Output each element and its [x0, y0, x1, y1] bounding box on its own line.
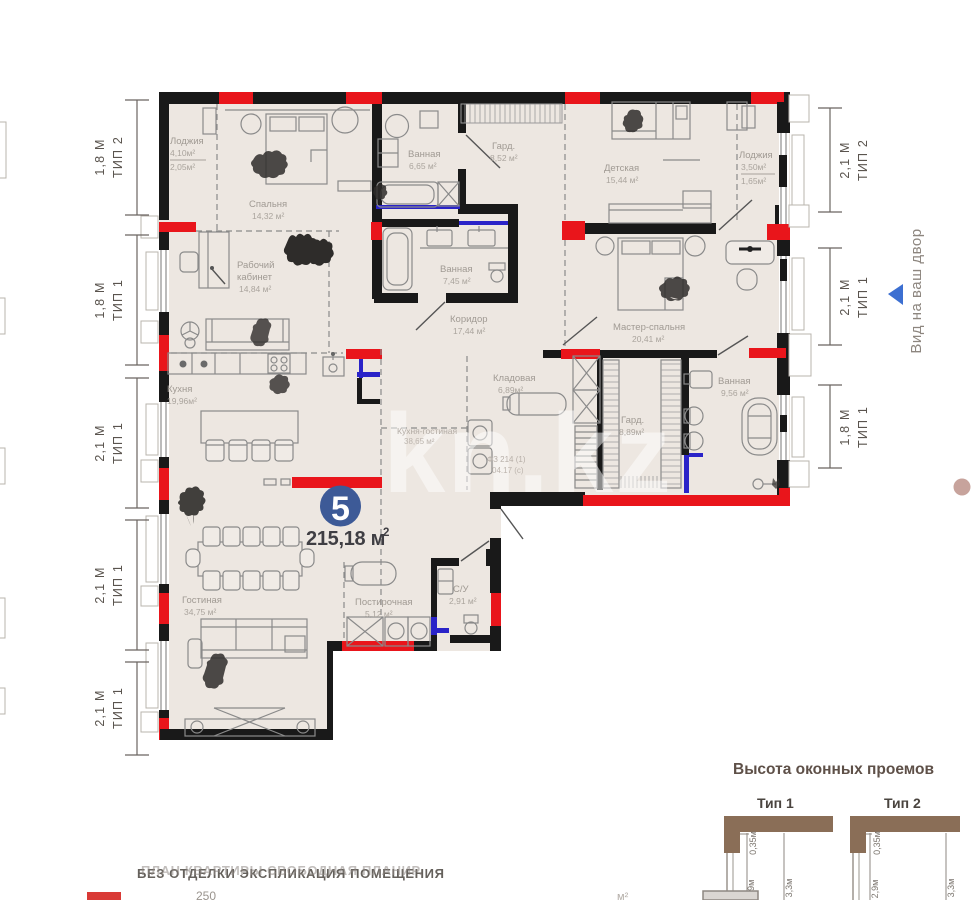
- svg-text:2,1 М: 2,1 М: [93, 566, 107, 603]
- svg-text:2,1 М: 2,1 М: [93, 424, 107, 461]
- svg-text:2: 2: [383, 527, 389, 539]
- svg-text:ТИП 1: ТИП 1: [856, 276, 870, 318]
- svg-text:Высота оконных проемов: Высота оконных проемов: [733, 761, 934, 778]
- svg-text:7,45 м²: 7,45 м²: [443, 276, 471, 286]
- svg-text:Вид на ваш двор: Вид на ваш двор: [908, 228, 925, 353]
- svg-text:Кладовая: Кладовая: [493, 373, 536, 384]
- svg-text:1,65м²: 1,65м²: [741, 176, 766, 186]
- svg-text:Детская: Детская: [604, 163, 639, 174]
- svg-text:Мастер-спальня: Мастер-спальня: [613, 322, 685, 333]
- svg-text:04.17 (с): 04.17 (с): [492, 466, 524, 475]
- svg-text:Постирочная: Постирочная: [355, 597, 413, 608]
- svg-text:ФЗ 214 (1): ФЗ 214 (1): [487, 455, 526, 464]
- svg-text:34,75 м²: 34,75 м²: [184, 607, 216, 617]
- svg-text:3,3м: 3,3м: [946, 879, 956, 898]
- svg-text:1,8 М: 1,8 М: [93, 281, 107, 318]
- svg-text:Ванная: Ванная: [408, 149, 441, 160]
- svg-text:ТИП 1: ТИП 1: [856, 406, 870, 448]
- svg-text:Гостиная: Гостиная: [182, 595, 222, 606]
- svg-text:2,1 М: 2,1 М: [838, 278, 852, 315]
- svg-text:20,41 м²: 20,41 м²: [632, 334, 664, 344]
- svg-text:ТИП 2: ТИП 2: [111, 136, 125, 178]
- svg-text:Рабочий: Рабочий: [237, 260, 274, 271]
- svg-text:14,84 м²: 14,84 м²: [239, 284, 271, 294]
- svg-text:0,35м: 0,35м: [748, 831, 758, 855]
- svg-text:8,52 м²: 8,52 м²: [490, 153, 518, 163]
- svg-text:3,50м²: 3,50м²: [741, 162, 766, 172]
- svg-text:Лоджия: Лоджия: [739, 150, 773, 161]
- svg-text:ТИП 2: ТИП 2: [856, 139, 870, 181]
- svg-text:6,65 м²: 6,65 м²: [409, 161, 437, 171]
- svg-text:9,56 м²: 9,56 м²: [721, 388, 749, 398]
- svg-text:ТИП 1: ТИП 1: [111, 687, 125, 729]
- svg-text:2,91 м²: 2,91 м²: [449, 596, 477, 606]
- svg-text:4,10м²: 4,10м²: [170, 148, 195, 158]
- svg-text:2,9м: 2,9м: [870, 880, 880, 899]
- svg-text:Кухня: Кухня: [167, 384, 192, 395]
- svg-text:250: 250: [196, 889, 216, 900]
- svg-text:Спальня: Спальня: [249, 199, 287, 210]
- svg-text:215,18 м: 215,18 м: [306, 528, 385, 550]
- svg-text:Лоджия: Лоджия: [170, 136, 204, 147]
- svg-text:м²: м²: [617, 891, 629, 900]
- svg-text:С/У: С/У: [453, 584, 470, 595]
- svg-text:5,12 м²: 5,12 м²: [365, 609, 393, 619]
- svg-text:ПЛАН КВАРТИРЫ СВОБОДНАЯ ПЛАНИР: ПЛАН КВАРТИРЫ СВОБОДНАЯ ПЛАНИР.: [141, 863, 423, 878]
- svg-text:15,44 м²: 15,44 м²: [606, 175, 638, 185]
- svg-text:38,65 м²: 38,65 м²: [404, 437, 435, 446]
- svg-text:Тип 2: Тип 2: [884, 795, 921, 811]
- svg-text:19,96м²: 19,96м²: [167, 396, 197, 406]
- svg-text:17,44 м²: 17,44 м²: [453, 326, 485, 336]
- svg-text:ТИП 1: ТИП 1: [111, 422, 125, 464]
- svg-text:14,32 м²: 14,32 м²: [252, 211, 284, 221]
- svg-text:2,1 М: 2,1 М: [838, 141, 852, 178]
- svg-text:Тип 1: Тип 1: [757, 795, 794, 811]
- svg-text:0,35м: 0,35м: [872, 831, 882, 855]
- svg-text:Гард.: Гард.: [621, 415, 644, 426]
- svg-text:Кухня-гостиная: Кухня-гостиная: [397, 426, 458, 436]
- svg-text:6,89м²: 6,89м²: [498, 385, 523, 395]
- svg-text:1,8 М: 1,8 М: [93, 138, 107, 175]
- svg-text:8,89м²: 8,89м²: [619, 427, 644, 437]
- svg-text:ТИП 1: ТИП 1: [111, 564, 125, 606]
- svg-text:kn.kz: kn.kz: [383, 391, 673, 516]
- svg-text:5: 5: [331, 490, 350, 528]
- svg-text:1,8 М: 1,8 М: [838, 408, 852, 445]
- svg-text:Ванная: Ванная: [718, 376, 751, 387]
- svg-text:3,3м: 3,3м: [784, 879, 794, 898]
- svg-text:2,05м²: 2,05м²: [170, 162, 195, 172]
- svg-text:кабинет: кабинет: [237, 272, 273, 283]
- svg-text:Коридор: Коридор: [450, 314, 488, 325]
- svg-text:Ванная: Ванная: [440, 264, 473, 275]
- svg-text:ТИП 1: ТИП 1: [111, 279, 125, 321]
- svg-text:2,1 М: 2,1 М: [93, 689, 107, 726]
- svg-text:Гард.: Гард.: [492, 141, 515, 152]
